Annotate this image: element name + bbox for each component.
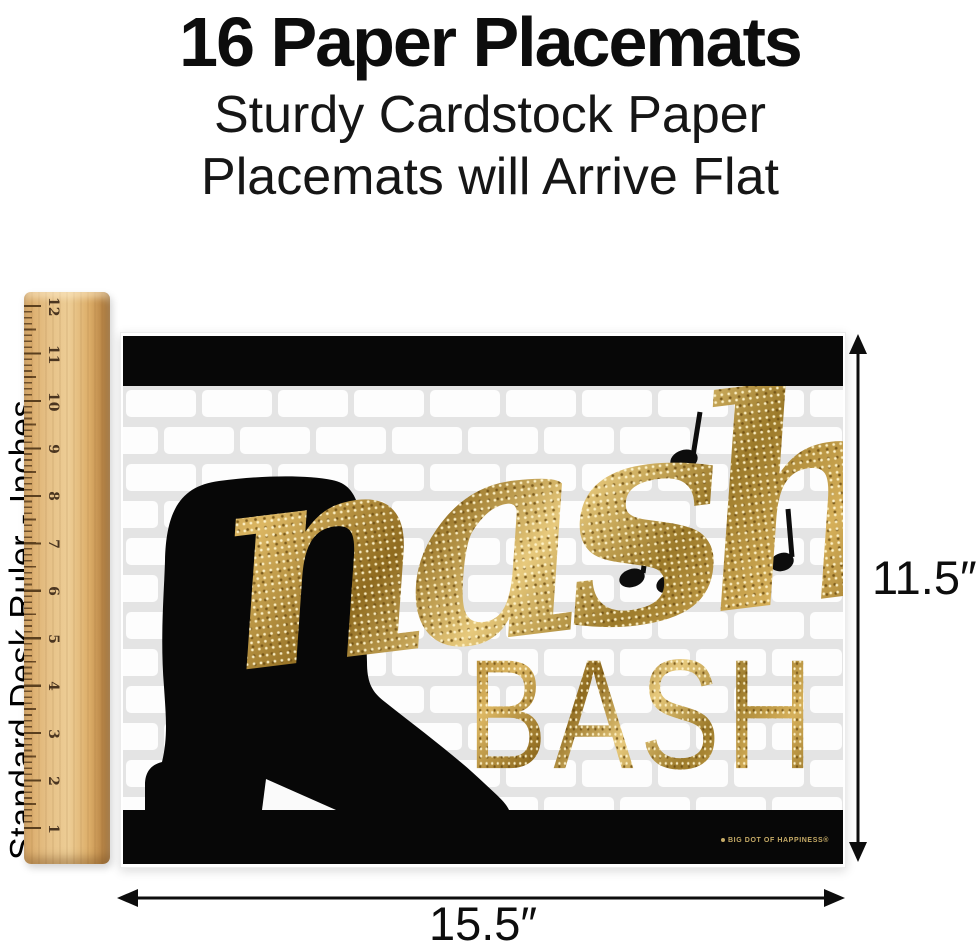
subtitle-line-2: Placemats will Arrive Flat (0, 146, 980, 208)
placemat-bottom-stripe: BIG DOT OF HAPPINESS® (123, 810, 843, 864)
wooden-ruler: 12 11 10 9 8 7 6 5 4 3 2 1 (24, 292, 110, 864)
ruler-inch-ticks (24, 305, 41, 831)
ruler-number: 5 (45, 630, 61, 648)
page-title: 16 Paper Placemats (0, 2, 980, 82)
ruler-number: 2 (45, 772, 61, 790)
ruler-number: 7 (45, 535, 61, 553)
ruler-number: 3 (45, 725, 61, 743)
ruler-number: 11 (45, 345, 61, 363)
subtitle: Sturdy Cardstock Paper Placemats will Ar… (0, 84, 980, 208)
height-dimension-label: 11.5″ (872, 550, 977, 605)
ruler-number: 10 (45, 392, 61, 410)
ruler-number: 1 (45, 820, 61, 838)
ruler-number: 6 (45, 582, 61, 600)
product-image: 16 Paper Placemats Sturdy Cardstock Pape… (0, 0, 980, 948)
placemat-preview: nash BASH BIG DOT OF HAPPINESS® (120, 332, 846, 868)
ruler-number: 12 (45, 297, 61, 315)
ruler-number: 4 (45, 677, 61, 695)
subtitle-line-1: Sturdy Cardstock Paper (0, 84, 980, 146)
brand-dot-icon (721, 838, 725, 842)
ruler-number: 8 (45, 487, 61, 505)
placemat-top-stripe (123, 336, 843, 386)
width-dimension-label: 15.5″ (120, 896, 846, 948)
height-arrow-icon (845, 333, 871, 863)
brand-mark: BIG DOT OF HAPPINESS® (728, 837, 829, 844)
brick-wall-background: nash BASH (123, 386, 843, 810)
ruler-number: 9 (45, 440, 61, 458)
caps-word-bash: BASH (467, 636, 819, 792)
